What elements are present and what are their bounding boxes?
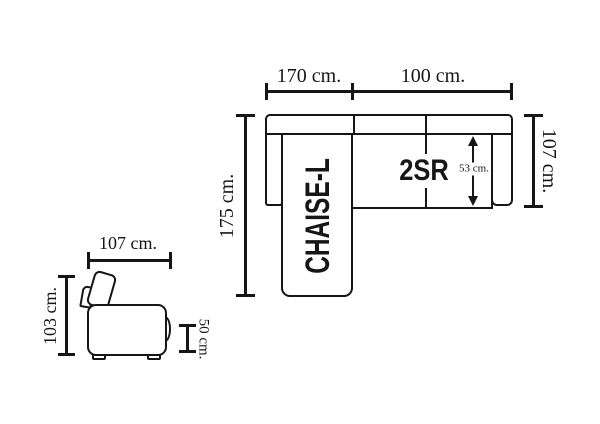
sofa-dimension-diagram: 170 cm. 100 cm. 175 cm. 107 cm. 53 cm. C… [0,0,600,424]
dim-tick [58,353,75,356]
dim-line-top [265,90,513,93]
dim-label-side-width: 107 cm. [99,234,157,252]
backrest-divider [425,114,427,135]
dim-label-seat-height: 50 cm. [196,319,211,360]
dim-tick [524,205,543,208]
side-dim-line-width [88,259,172,262]
dim-line-left [244,115,247,297]
dim-tick [351,83,354,100]
dim-tick [236,294,255,297]
dim-label-total-depth: 175 cm. [217,174,237,238]
right-armrest [491,133,513,206]
arrowhead-up-icon [468,136,478,146]
dim-tick [179,350,196,353]
dim-tick [58,275,75,278]
dim-tick [265,83,268,100]
chaise-label: CHAISE-L [301,158,335,274]
dim-label-side-height: 103 cm. [41,287,59,345]
dim-line-right [532,115,535,208]
dim-tick [236,114,255,117]
dim-label-side-depth: 107 cm. [539,129,559,193]
sofa-body [87,304,167,356]
side-dim-line-height [65,276,68,356]
arrowhead-down-icon [468,196,478,206]
backrest-divider [353,114,355,135]
dim-label-seat-depth: 53 cm. [457,163,491,176]
dim-tick [169,252,172,269]
dim-tick [179,324,196,327]
side-dim-line-seat-height [186,325,189,353]
left-armrest [265,133,283,206]
sofa-backrest [265,114,513,135]
dim-tick [510,83,513,100]
dim-tick [524,114,543,117]
dim-tick [87,252,90,269]
dim-label-chaise-width: 170 cm. [277,66,341,86]
dim-label-seats-width: 100 cm. [401,66,465,86]
seats-label: 2SR [396,154,452,188]
